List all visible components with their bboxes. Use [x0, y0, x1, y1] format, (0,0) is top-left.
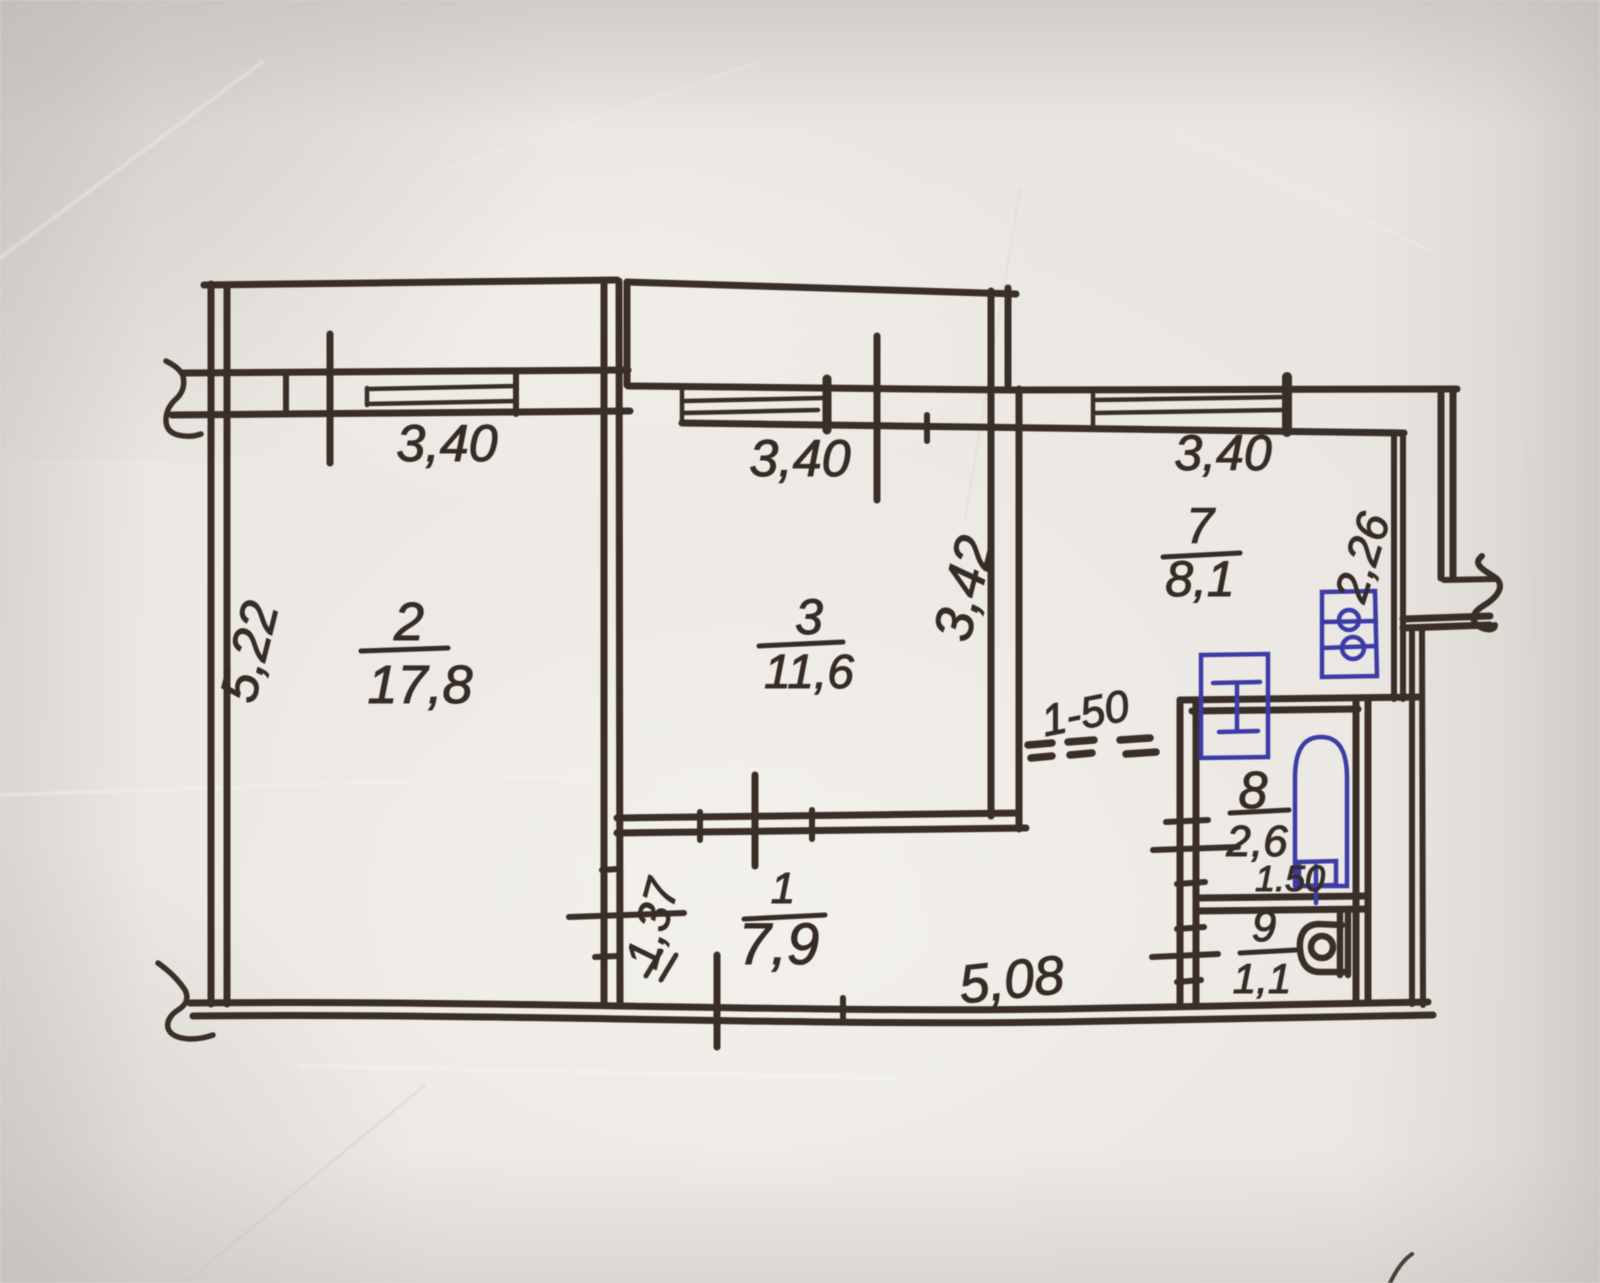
svg-text:3,40: 3,40: [749, 430, 850, 488]
svg-text:8,1: 8,1: [1165, 551, 1235, 607]
svg-text:9: 9: [1252, 902, 1276, 951]
svg-text:17,8: 17,8: [367, 655, 472, 715]
svg-text:5,08: 5,08: [956, 945, 1067, 1016]
svg-text:1: 1: [771, 864, 795, 913]
svg-text:1,1: 1,1: [1233, 955, 1291, 1002]
svg-text:2: 2: [393, 592, 424, 652]
svg-text:3,40: 3,40: [396, 415, 497, 473]
svg-text:11,6: 11,6: [764, 646, 854, 699]
svg-text:3,40: 3,40: [1174, 425, 1272, 481]
svg-text:7: 7: [1186, 498, 1216, 554]
svg-text:1.50: 1.50: [1255, 858, 1325, 899]
svg-text:7,9: 7,9: [739, 912, 820, 977]
svg-text:3: 3: [795, 589, 823, 645]
